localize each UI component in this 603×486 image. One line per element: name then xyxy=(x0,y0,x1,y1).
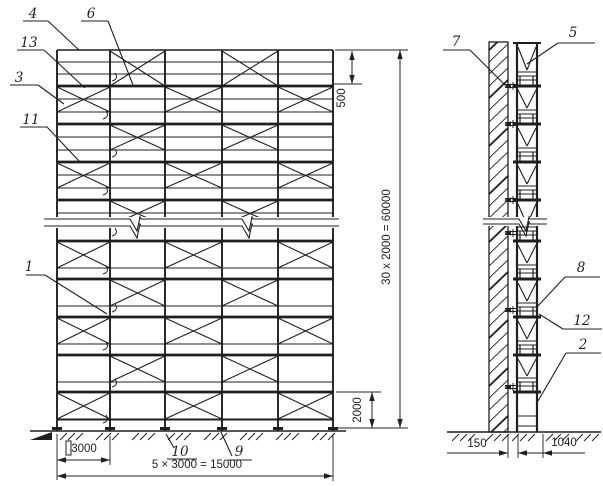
callout-2: 2 xyxy=(538,337,601,401)
ground-hatch-tick xyxy=(176,433,183,440)
dimension-arrow xyxy=(397,50,402,59)
wall-hatch-line xyxy=(487,294,510,316)
ground-hatch-tick xyxy=(528,434,535,441)
wall-hatch-line xyxy=(487,282,510,304)
ground-hatch-tick xyxy=(76,433,83,440)
dim-1040: 1040 xyxy=(518,434,585,458)
dimension-label: 2000 xyxy=(352,397,364,423)
ground-hatch-tick xyxy=(320,433,327,440)
callout-leader xyxy=(539,314,563,329)
dim-500: 500 xyxy=(333,51,362,108)
callout-leader xyxy=(527,43,558,64)
ground-hatch-tick xyxy=(132,433,139,440)
wall-hatch-line xyxy=(487,270,510,292)
dimension-label: 1040 xyxy=(551,437,577,449)
dimensions: 50030 x 2000 = 60000200030005 × 3000 = 1… xyxy=(57,50,585,481)
dimension-label: 5 × 3000 = 15000 xyxy=(152,459,242,471)
wall-hatch-line xyxy=(487,438,510,460)
callout-8: 8 xyxy=(536,260,600,308)
dim-2000: 2000 xyxy=(336,392,381,428)
ground-hatch-tick xyxy=(60,433,67,440)
callout-number: 9 xyxy=(235,444,244,460)
ground-hatch-tick xyxy=(212,433,219,440)
side-brace xyxy=(518,321,527,339)
ground-hatch-tick xyxy=(276,433,283,440)
ground-hatch-tick xyxy=(204,433,211,440)
ground-hatch-tick xyxy=(284,433,291,440)
wall-hatch-line xyxy=(487,390,510,412)
side-brace xyxy=(518,47,527,70)
callout-leader xyxy=(470,50,505,85)
dimension-arrow xyxy=(324,473,333,478)
callout-number: 8 xyxy=(577,260,586,276)
ground-hatch-tick xyxy=(292,433,299,440)
wall-hatch xyxy=(487,30,510,460)
break-zigzag-line xyxy=(44,224,339,238)
ground-hatch-tick xyxy=(460,434,467,441)
ground-hatch-tick xyxy=(592,434,599,441)
callout-number: 12 xyxy=(573,313,590,329)
wall-hatch-line xyxy=(487,402,510,424)
callout-leader xyxy=(44,50,85,88)
clamp-mark xyxy=(103,342,107,350)
ground-wedge xyxy=(30,432,52,440)
wall-hatch-line xyxy=(487,42,510,64)
wall-hatch-line xyxy=(487,342,510,364)
dimension-arrow xyxy=(349,75,354,84)
ground-hatch-tick xyxy=(486,434,493,441)
callout-leader xyxy=(48,21,79,50)
wall-hatch-line xyxy=(487,30,510,52)
callout-number: 13 xyxy=(20,35,37,51)
wall-hatch-line xyxy=(487,330,510,352)
side-view xyxy=(447,30,601,460)
callout-3: 3 xyxy=(10,70,64,104)
callout-leader xyxy=(221,432,232,456)
dimension-arrow xyxy=(397,419,402,428)
dimension-arrow xyxy=(369,392,374,401)
wall-hatch-line xyxy=(487,162,510,184)
ground-hatch-tick xyxy=(328,433,335,440)
ground-hatch-tick xyxy=(140,433,147,440)
side-brace xyxy=(527,283,536,301)
ground-hatch-tick xyxy=(494,434,501,441)
callout-6: 6 xyxy=(81,6,133,85)
side-brace xyxy=(527,359,536,376)
dimension-arrow xyxy=(543,450,552,455)
callout-leader xyxy=(45,275,107,314)
wall-hatch-line xyxy=(487,54,510,76)
ground-hatch-tick xyxy=(96,433,103,440)
wall-hatch-line xyxy=(487,138,510,160)
callout-leader xyxy=(536,277,565,308)
clamp-mark xyxy=(112,228,116,236)
side-brace xyxy=(518,359,527,376)
wall-hatch-line xyxy=(487,102,510,124)
side-brace xyxy=(527,321,536,339)
wall-hatch-line xyxy=(487,150,510,172)
dimension-arrow xyxy=(369,419,374,428)
callout-number: 7 xyxy=(452,34,461,50)
ground-hatch-tick xyxy=(184,433,191,440)
callout-leader xyxy=(38,85,64,104)
wall-hatch-line xyxy=(487,246,510,268)
side-brace xyxy=(518,166,527,184)
callout-number: 5 xyxy=(569,25,578,41)
side-brace xyxy=(518,128,527,146)
wall-hatch-line xyxy=(487,78,510,100)
callout-leader xyxy=(108,21,133,85)
dim-3000: 3000 xyxy=(57,434,110,480)
ground-hatch-tick xyxy=(576,434,583,441)
wall-hatch-line xyxy=(487,318,510,340)
ground-hatch-tick xyxy=(584,434,591,441)
dimension-label: 30 x 2000 = 60000 xyxy=(381,189,393,285)
ground-hatch-tick xyxy=(520,434,527,441)
dimension-label: 150 xyxy=(467,438,486,450)
dimension-arrow xyxy=(499,450,508,455)
scaffolding-drawing: 50030 x 2000 = 60000200030005 × 3000 = 1… xyxy=(0,0,603,486)
callout-number: 4 xyxy=(28,6,38,22)
ground-hatch-tick xyxy=(112,433,119,440)
callout-number: 2 xyxy=(578,337,588,353)
ground-hatch-tick xyxy=(312,433,319,440)
dimension-arrow xyxy=(57,473,66,478)
wall-hatch-line xyxy=(487,258,510,280)
wall-hatch-line xyxy=(487,126,510,148)
dimension-label: 500 xyxy=(336,88,348,107)
callout-number: 10 xyxy=(171,444,189,460)
dimension-label: 3000 xyxy=(71,443,97,455)
wall-hatch-line xyxy=(487,186,510,208)
wall-hatch-line xyxy=(487,354,510,376)
wall-hatch-line xyxy=(487,90,510,112)
callout-leader xyxy=(47,127,80,162)
callout-number: 11 xyxy=(22,112,39,128)
ground-hatch-tick xyxy=(248,433,255,440)
ground-hatch-tick xyxy=(240,433,247,440)
callout-9: 9 xyxy=(221,432,252,460)
wall-hatch-line xyxy=(487,234,510,256)
side-brace xyxy=(527,90,536,108)
dimension-arrow xyxy=(349,51,354,60)
ground-hatch-tick xyxy=(256,433,263,440)
callout-12: 12 xyxy=(539,313,602,329)
wall-hatch-line xyxy=(487,366,510,388)
ground-hatch-tick xyxy=(148,433,155,440)
side-brace xyxy=(527,166,536,184)
front-view xyxy=(30,50,346,455)
ground-hatch-tick xyxy=(68,433,75,440)
ground-hatch-tick xyxy=(452,434,459,441)
break-mask xyxy=(483,217,547,226)
side-brace xyxy=(527,128,536,146)
side-brace xyxy=(518,245,527,263)
dimension-arrow xyxy=(57,457,66,462)
side-brace xyxy=(518,283,527,301)
callout-number: 6 xyxy=(87,6,96,22)
wall-hatch-line xyxy=(487,174,510,196)
drawing-svg: 50030 x 2000 = 60000200030005 × 3000 = 1… xyxy=(0,0,603,486)
callout-leader xyxy=(538,353,566,401)
callout-number: 3 xyxy=(15,70,24,86)
side-brace xyxy=(518,90,527,108)
dimension-arrow xyxy=(101,457,110,462)
side-brace xyxy=(527,245,536,263)
dim-15000: 5 × 3000 = 15000 xyxy=(57,434,333,481)
clamp-mark xyxy=(103,266,107,274)
callout-number: 1 xyxy=(25,259,34,275)
